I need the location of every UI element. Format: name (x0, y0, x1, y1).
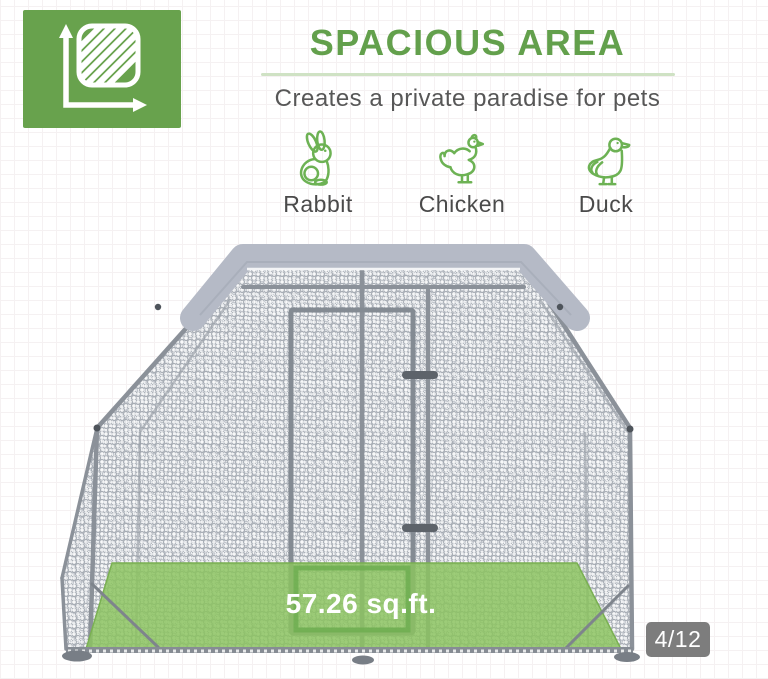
pagination-badge: 4/12 (646, 622, 710, 657)
cage-frame (62, 268, 632, 649)
chicken-icon (433, 130, 491, 188)
pet-item-rabbit: Rabbit (263, 130, 373, 218)
pet-label: Duck (579, 191, 633, 218)
duck-icon (577, 130, 635, 188)
cage-back-frame (136, 300, 628, 648)
pet-item-chicken: Chicken (407, 130, 517, 218)
title-divider (261, 73, 675, 76)
suitable-pets-row: Rabbit Chicken (263, 130, 661, 218)
feature-title: SPACIOUS AREA (240, 24, 695, 62)
pet-item-duck: Duck (551, 130, 661, 218)
pet-label: Rabbit (283, 191, 352, 218)
cage-mesh (62, 266, 633, 649)
area-dimension-icon (52, 19, 152, 119)
pet-label: Chicken (419, 191, 506, 218)
feature-icon-box (23, 10, 181, 128)
cage-cover (193, 257, 577, 318)
corner-braces (92, 584, 628, 648)
feature-header: SPACIOUS AREA Creates a private paradise… (240, 24, 695, 113)
cage-feet (62, 651, 640, 665)
floor-area-label: 57.26 sq.ft. (286, 588, 437, 619)
door-floor-outline (296, 568, 408, 630)
cage-door (291, 310, 434, 633)
rabbit-icon (289, 130, 347, 188)
feature-subtitle: Creates a private paradise for pets (240, 85, 695, 113)
product-gallery-slide: SPACIOUS AREA Creates a private paradise… (0, 0, 768, 679)
frame-clamps (94, 304, 634, 433)
pagination-label: 4/12 (655, 626, 702, 653)
cage-bottom-rail (66, 650, 633, 651)
floor-highlight (86, 563, 621, 649)
